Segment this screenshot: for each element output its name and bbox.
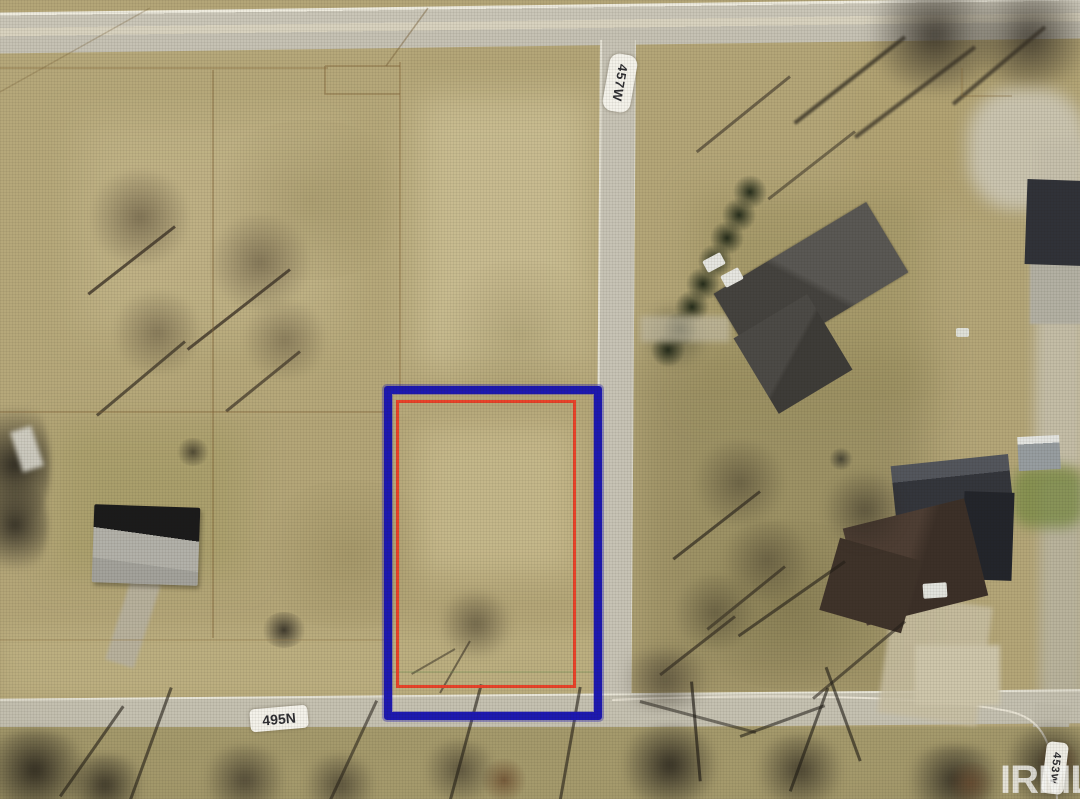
field-right-olive [638, 350, 928, 700]
branch-shadow [825, 667, 862, 762]
tree-bottom [0, 730, 95, 799]
branch-shadow [789, 687, 829, 791]
house-large [720, 222, 910, 397]
evergreen-tree [651, 333, 685, 367]
tree-bottom [420, 740, 500, 799]
tree-shadow [793, 35, 906, 124]
pad-right-edge [1030, 262, 1080, 324]
bare-tree [670, 575, 760, 650]
field-topmid-pale [415, 95, 590, 370]
top-road [0, 0, 1080, 54]
house-complex-roof [819, 538, 921, 634]
corner-trees [860, 0, 1010, 90]
tree-bottom [300, 755, 380, 799]
tree-shadow [659, 615, 736, 676]
tree-shadow [672, 490, 761, 560]
tree-round-brown [945, 762, 997, 799]
pond-pale [968, 88, 1080, 210]
tree-bottom [60, 755, 150, 799]
tree-shadow [706, 565, 786, 630]
bare-tree [690, 440, 790, 525]
evergreen-tree [698, 244, 732, 278]
field-righttop-tan [845, 25, 1080, 210]
bush [828, 448, 854, 470]
right-green-patch [1012, 466, 1080, 528]
branch-shadow [329, 700, 378, 799]
evergreen-tree [686, 267, 720, 301]
shed-right [1017, 435, 1061, 471]
field-house-olive [695, 195, 925, 405]
evergreen-shadow [640, 300, 710, 370]
vehicle-white [923, 582, 948, 599]
evergreen-tree [722, 198, 756, 232]
parcel-outline-inner [396, 400, 576, 688]
vehicle-white [720, 267, 744, 288]
shed-dark [262, 612, 306, 648]
road-label-495n-text: 495N [262, 709, 297, 728]
field-mottle [680, 520, 900, 690]
pale-pad [915, 645, 1000, 705]
bare-tree [110, 290, 205, 375]
tree-shadow [87, 225, 176, 295]
branch-shadow [640, 700, 757, 733]
tree-shadow [187, 268, 291, 350]
tree-bottom [200, 745, 290, 799]
evergreen-tree [663, 312, 697, 346]
branch-shadow [740, 704, 825, 737]
field-topleft-pale [80, 120, 340, 330]
tree-shadow [854, 45, 976, 138]
road-shadow [610, 650, 720, 710]
evergreen-tree [733, 175, 767, 209]
tree-shadow [225, 350, 301, 412]
driveway-large-house [640, 316, 730, 342]
driveway-complex [877, 594, 993, 727]
branch-shadow [59, 705, 124, 797]
tree-shadow [96, 340, 186, 416]
tree-bottom [750, 735, 850, 799]
branch-shadow [812, 620, 906, 699]
bare-tree [720, 520, 815, 600]
road-label-453w-text: 453W [1047, 751, 1063, 785]
tree-shadow [696, 75, 791, 153]
right-pale-lower [1040, 478, 1080, 718]
road-label-457w: 457W [601, 52, 639, 114]
branch-shadow [738, 560, 846, 637]
edge-trees [0, 390, 50, 540]
road-label-495n: 495N [249, 705, 309, 733]
house-small-left [92, 504, 201, 586]
vehicle-white [956, 328, 969, 337]
aerial-map-canvas[interactable]: 453W 457W 495N IRMLS [0, 0, 1080, 799]
field-leftmid-green [55, 425, 245, 575]
tree-bottom [1000, 725, 1080, 799]
evergreen-tree [710, 221, 744, 255]
house-complex-roof [891, 454, 1014, 518]
bare-tree [205, 215, 315, 310]
field-mottle [200, 120, 420, 280]
tree-shadow [952, 25, 1046, 105]
right-pale-strip [1035, 140, 1080, 470]
tree-over-complex [820, 470, 910, 550]
evergreen-tree [675, 290, 709, 324]
bare-tree [85, 170, 195, 265]
tree-round-brown [480, 758, 528, 799]
corner-trees [960, 0, 1080, 85]
edge-trees [0, 470, 48, 580]
road-label-457w-text: 457W [609, 63, 630, 103]
branch-shadow [690, 682, 701, 782]
white-structure [10, 426, 44, 473]
bottom-strip [0, 727, 1080, 799]
tree-shadow [767, 130, 856, 200]
house-complex-roof [843, 498, 988, 625]
bush [175, 438, 211, 466]
tree-bottom [900, 745, 1010, 799]
bare-tree [240, 300, 330, 380]
driveway-small-house [105, 576, 161, 669]
road-label-453w: 453W [1041, 741, 1069, 795]
branch-shadow [129, 687, 172, 799]
tree-bottom [615, 725, 725, 799]
vehicle-white [702, 252, 726, 273]
building-right-edge [1025, 179, 1080, 266]
house-complex-roof [961, 491, 1014, 581]
mls-watermark: IRMLS [1000, 758, 1080, 799]
field-topleft [0, 46, 410, 416]
